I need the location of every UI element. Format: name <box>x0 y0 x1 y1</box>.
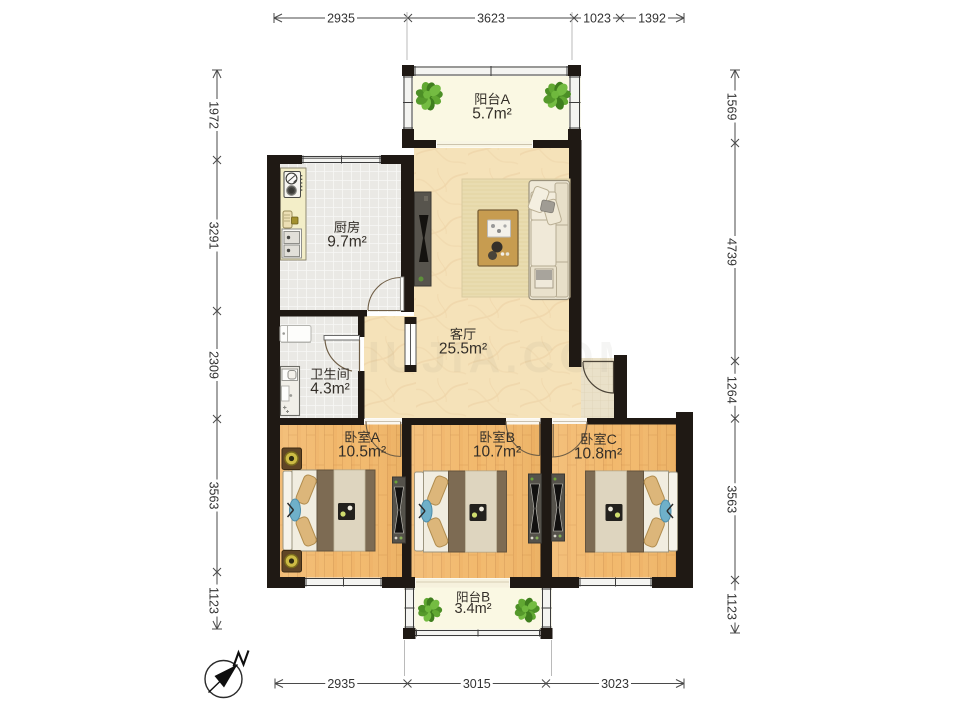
svg-text:10.8m²: 10.8m² <box>574 446 622 463</box>
svg-text:4739: 4739 <box>725 238 739 266</box>
svg-text:1264: 1264 <box>725 376 739 404</box>
svg-text:3291: 3291 <box>207 222 221 250</box>
svg-text:3563: 3563 <box>207 482 221 510</box>
svg-text:25.5m²: 25.5m² <box>439 341 487 358</box>
svg-text:1569: 1569 <box>725 93 739 121</box>
svg-text:4.3m²: 4.3m² <box>310 381 350 398</box>
svg-text:5.7m²: 5.7m² <box>472 106 512 123</box>
svg-text:3015: 3015 <box>463 677 491 691</box>
svg-text:2935: 2935 <box>327 12 355 26</box>
svg-text:10.7m²: 10.7m² <box>473 444 521 461</box>
svg-text:1972: 1972 <box>207 101 221 129</box>
svg-text:1123: 1123 <box>725 593 739 620</box>
svg-text:1392: 1392 <box>638 12 666 26</box>
svg-text:10.5m²: 10.5m² <box>338 444 386 461</box>
svg-text:1123: 1123 <box>207 587 221 614</box>
svg-text:9.7m²: 9.7m² <box>327 234 367 251</box>
svg-text:3023: 3023 <box>601 677 629 691</box>
svg-text:2935: 2935 <box>327 677 355 691</box>
svg-text:3623: 3623 <box>477 12 505 26</box>
svg-text:3.4m²: 3.4m² <box>454 601 491 617</box>
svg-text:1023: 1023 <box>583 12 611 26</box>
svg-text:3563: 3563 <box>725 485 739 513</box>
svg-text:LIUJIA.COM: LIUJIA.COM <box>336 333 640 382</box>
svg-text:2309: 2309 <box>207 351 221 379</box>
